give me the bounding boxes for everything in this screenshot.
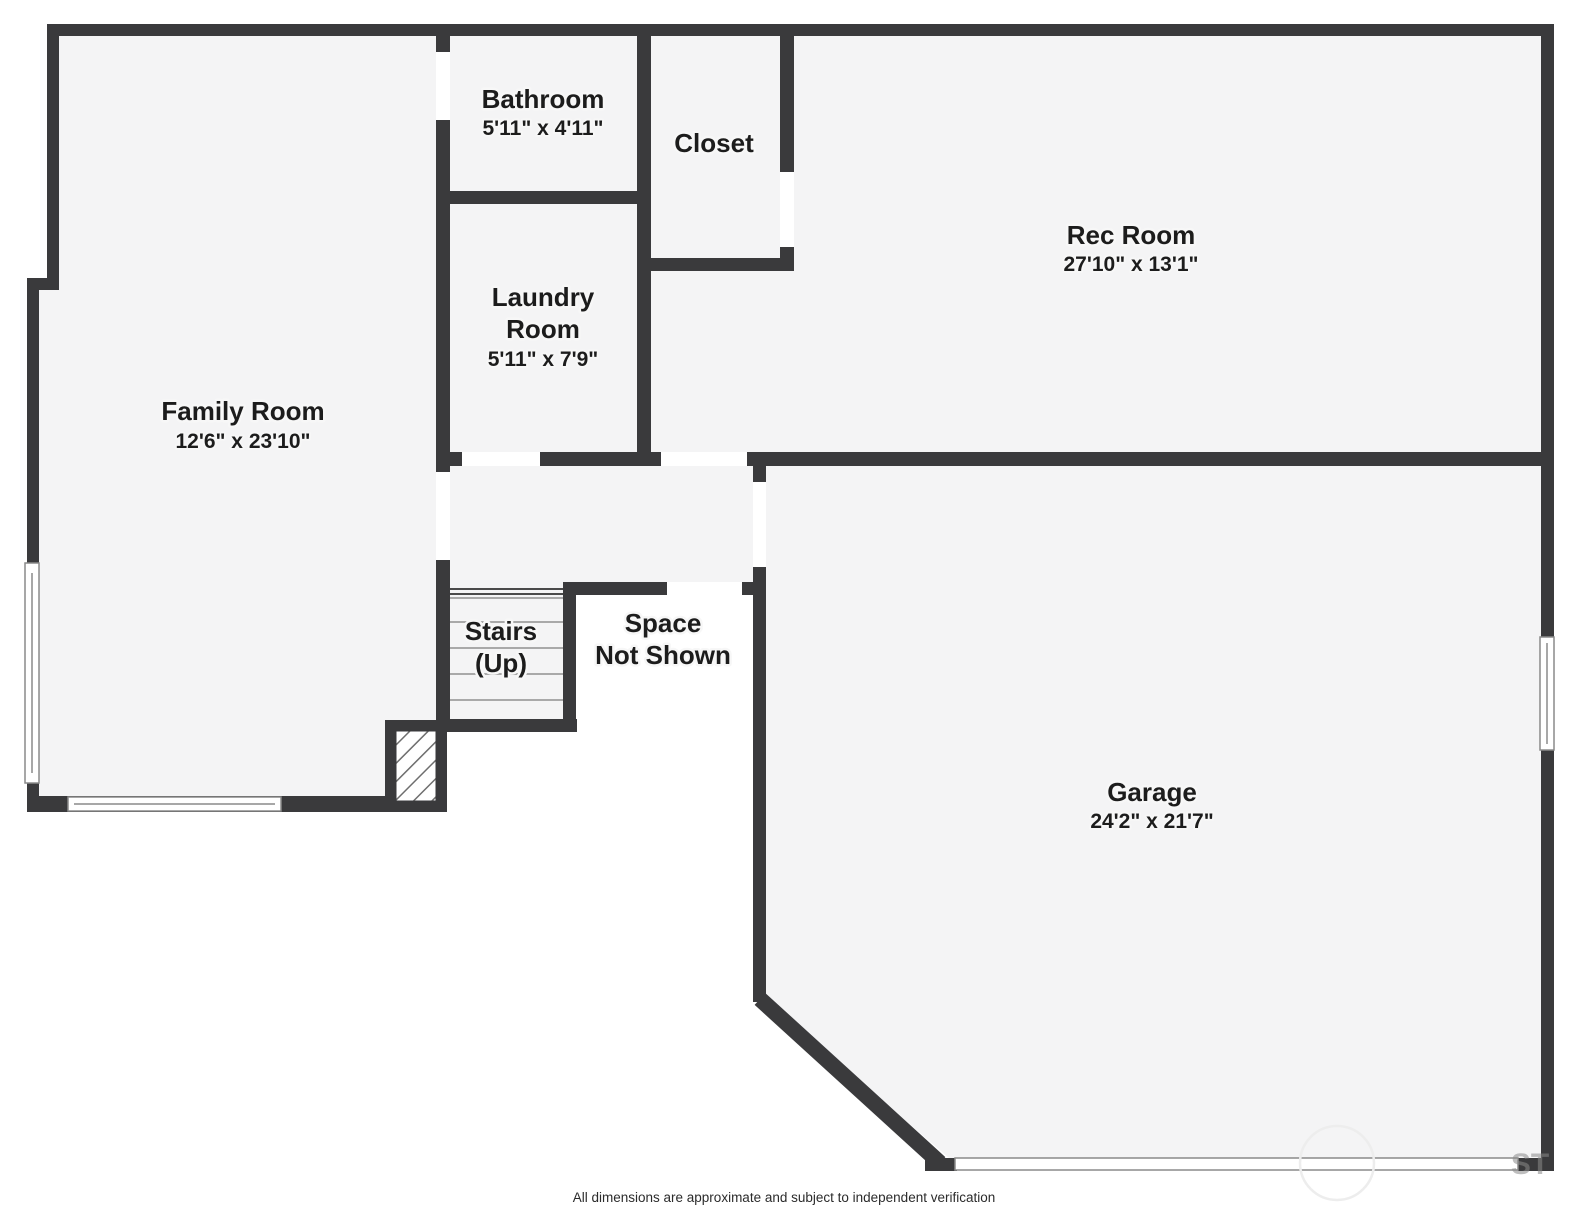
family-bottom-window bbox=[68, 797, 281, 811]
family-left-window bbox=[25, 563, 39, 783]
family-room-label: Family Room bbox=[161, 396, 324, 426]
space-not-shown-label-line2: Not Shown bbox=[595, 640, 731, 670]
laundry-door bbox=[462, 452, 540, 466]
stairs-label-line1: Stairs bbox=[465, 616, 537, 646]
laundry-right-wall bbox=[637, 24, 651, 465]
garage-dims: 24'2" x 21'7" bbox=[1090, 810, 1213, 833]
floor-plan-drawing: Bathroom 5'11" x 4'11" Closet Rec Room 2… bbox=[0, 0, 1577, 1217]
rec-room-bottom-wall bbox=[747, 452, 1554, 466]
watermark-letters: ST bbox=[1511, 1148, 1549, 1181]
rec-room-label: Rec Room bbox=[1067, 220, 1196, 250]
chimney-hatched-block bbox=[385, 720, 447, 812]
bathroom-bottom-wall bbox=[436, 191, 651, 204]
family-room-dims: 12'6" x 23'10" bbox=[175, 430, 310, 453]
space-not-shown-label-line1: Space bbox=[625, 608, 702, 638]
stairs-right-wall bbox=[563, 582, 576, 732]
rec-room-hall-door bbox=[661, 452, 747, 466]
garage-side-door bbox=[753, 482, 766, 567]
bathroom-dims: 5'11" x 4'11" bbox=[482, 117, 603, 140]
bathroom-left-opening bbox=[436, 52, 450, 120]
floor-plan-page: Bathroom 5'11" x 4'11" Closet Rec Room 2… bbox=[0, 0, 1577, 1217]
space-not-shown-door bbox=[667, 582, 742, 595]
bathroom-label: Bathroom bbox=[482, 84, 605, 114]
closet-door bbox=[780, 172, 794, 247]
closet-label: Closet bbox=[674, 128, 754, 158]
garage-right-window bbox=[1540, 637, 1554, 750]
stairs-label-line2: (Up) bbox=[475, 648, 527, 678]
right-wall bbox=[1541, 24, 1554, 1170]
garage-main-door bbox=[955, 1158, 1518, 1170]
disclaimer-text: All dimensions are approximate and subje… bbox=[573, 1190, 996, 1205]
family-hall-door bbox=[436, 472, 450, 560]
garage-label: Garage bbox=[1107, 777, 1197, 807]
top-wall bbox=[47, 24, 1554, 36]
stairs-bottom-wall bbox=[436, 719, 577, 732]
rec-room-dims: 27'10" x 13'1" bbox=[1063, 253, 1198, 276]
laundry-dims: 5'11" x 7'9" bbox=[488, 348, 599, 371]
closet-bottom-wall bbox=[643, 258, 794, 271]
laundry-label-line2: Room bbox=[506, 314, 580, 344]
laundry-label-line1: Laundry bbox=[492, 282, 595, 312]
left-wall-upper bbox=[47, 24, 59, 290]
